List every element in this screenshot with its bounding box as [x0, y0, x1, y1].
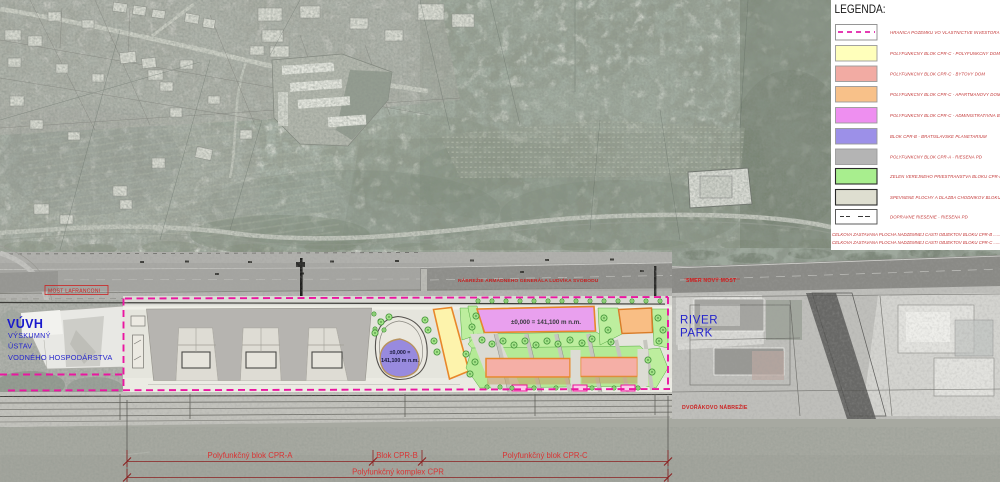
- svg-text:PARK: PARK: [680, 328, 713, 340]
- svg-text:±0,000 = 141,100 m n.m.: ±0,000 = 141,100 m n.m.: [511, 319, 581, 326]
- svg-text:Blok CPR-B: Blok CPR-B: [376, 451, 418, 460]
- svg-text:POLYFUNKCNY BLOK CPR-C - BYTOV: POLYFUNKCNY BLOK CPR-C - BYTOVY DOM: [890, 72, 985, 77]
- svg-text:POLYFUNKCNY BLOK CPR-A - RIESE: POLYFUNKCNY BLOK CPR-A - RIESENA PD: [890, 155, 982, 160]
- svg-text:CELKOVA ZASTAVANA PLOCHA NADZE: CELKOVA ZASTAVANA PLOCHA NADZEMNEJ CASTI…: [832, 232, 1000, 237]
- svg-text:POLYFUNKCNY BLOK CPR-C - APART: POLYFUNKCNY BLOK CPR-C - APARTMANOVY DOM: [890, 92, 1000, 97]
- svg-text:±0,000 =: ±0,000 =: [390, 350, 411, 356]
- svg-text:LEGENDA:: LEGENDA:: [835, 2, 886, 16]
- svg-text:ÚSTAV: ÚSTAV: [8, 342, 32, 351]
- svg-text:CELKOVA ZASTAVANA PLOCHA NADZE: CELKOVA ZASTAVANA PLOCHA NADZEMNEJ CASTI…: [832, 240, 1000, 245]
- svg-text:SMER NOVÝ MOST: SMER NOVÝ MOST: [686, 277, 737, 284]
- svg-text:VÝSKUMNÝ: VÝSKUMNÝ: [8, 331, 51, 340]
- svg-text:SPEVNENE PLOCHY A DLAZBA CHODN: SPEVNENE PLOCHY A DLAZBA CHODNIKOV BLOKU…: [890, 195, 1000, 200]
- svg-text:141,100 m n.m.: 141,100 m n.m.: [381, 358, 419, 364]
- svg-text:VODNÉHO HOSPODÁRSTVA: VODNÉHO HOSPODÁRSTVA: [8, 353, 112, 362]
- svg-text:Polyfunkčný komplex CPR: Polyfunkčný komplex CPR: [352, 468, 444, 477]
- svg-text:RIVER: RIVER: [680, 315, 718, 327]
- svg-text:ZELEN VEREJNEHO PRIESTRANSTVA: ZELEN VEREJNEHO PRIESTRANSTVA BLOKU CPR-…: [889, 174, 1000, 179]
- svg-text:DOPRAVNE RIESENIE - RIESENA PD: DOPRAVNE RIESENIE - RIESENA PD: [890, 215, 968, 220]
- svg-text:POLYFUNKCNY BLOK CPR-C - POLYF: POLYFUNKCNY BLOK CPR-C - POLYFUNKCNY DOM: [890, 51, 1000, 56]
- svg-text:POLYFUNKCNY BLOK CPR-C - ADMIN: POLYFUNKCNY BLOK CPR-C - ADMINISTRATIVNA…: [890, 113, 1000, 118]
- svg-text:Polyfunkčný blok CPR-A: Polyfunkčný blok CPR-A: [208, 451, 294, 460]
- svg-text:BLOK CPR-B - BRATISLAVSKE PLAN: BLOK CPR-B - BRATISLAVSKE PLANETARIUM: [890, 134, 987, 139]
- svg-text:Polyfunkčný blok CPR-C: Polyfunkčný blok CPR-C: [502, 451, 588, 460]
- svg-text:VÚVH: VÚVH: [7, 316, 43, 331]
- svg-text:MOST LAFRANCONI: MOST LAFRANCONI: [48, 289, 100, 295]
- svg-text:DVOŘÁKOVO NÁBREŽIE: DVOŘÁKOVO NÁBREŽIE: [682, 403, 748, 411]
- svg-text:HRANICA POZEMKU VO VLASTNICTVE: HRANICA POZEMKU VO VLASTNICTVE INVESTORA…: [890, 30, 1000, 35]
